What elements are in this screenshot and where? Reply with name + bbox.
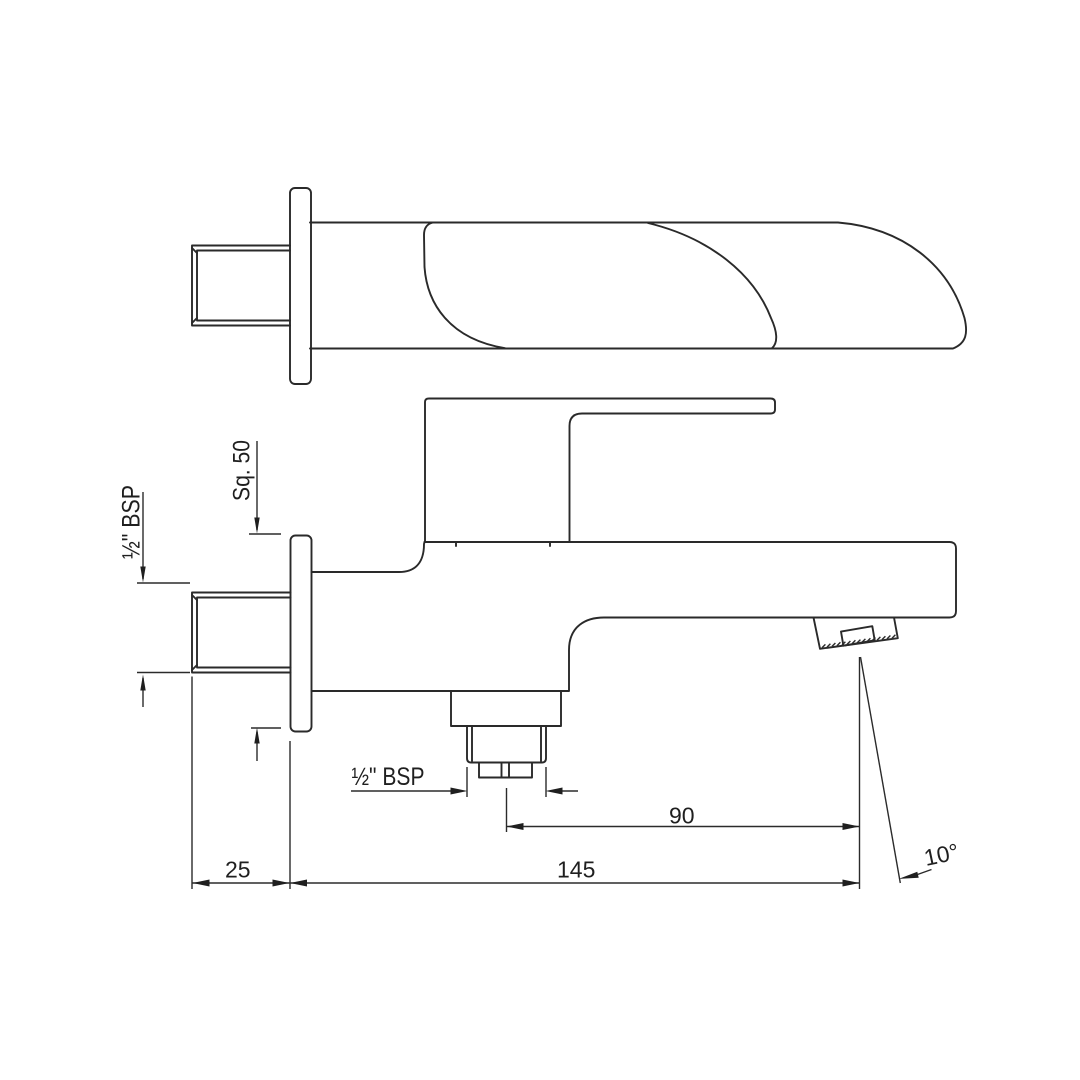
- svg-text:10°: 10°: [922, 838, 961, 871]
- svg-text:25: 25: [225, 857, 251, 883]
- svg-text:Sq. 50: Sq. 50: [229, 440, 256, 501]
- svg-text:½" BSP: ½" BSP: [352, 763, 425, 791]
- svg-text:90: 90: [669, 803, 695, 829]
- svg-text:145: 145: [557, 857, 595, 883]
- svg-text:½" BSP: ½" BSP: [118, 485, 146, 559]
